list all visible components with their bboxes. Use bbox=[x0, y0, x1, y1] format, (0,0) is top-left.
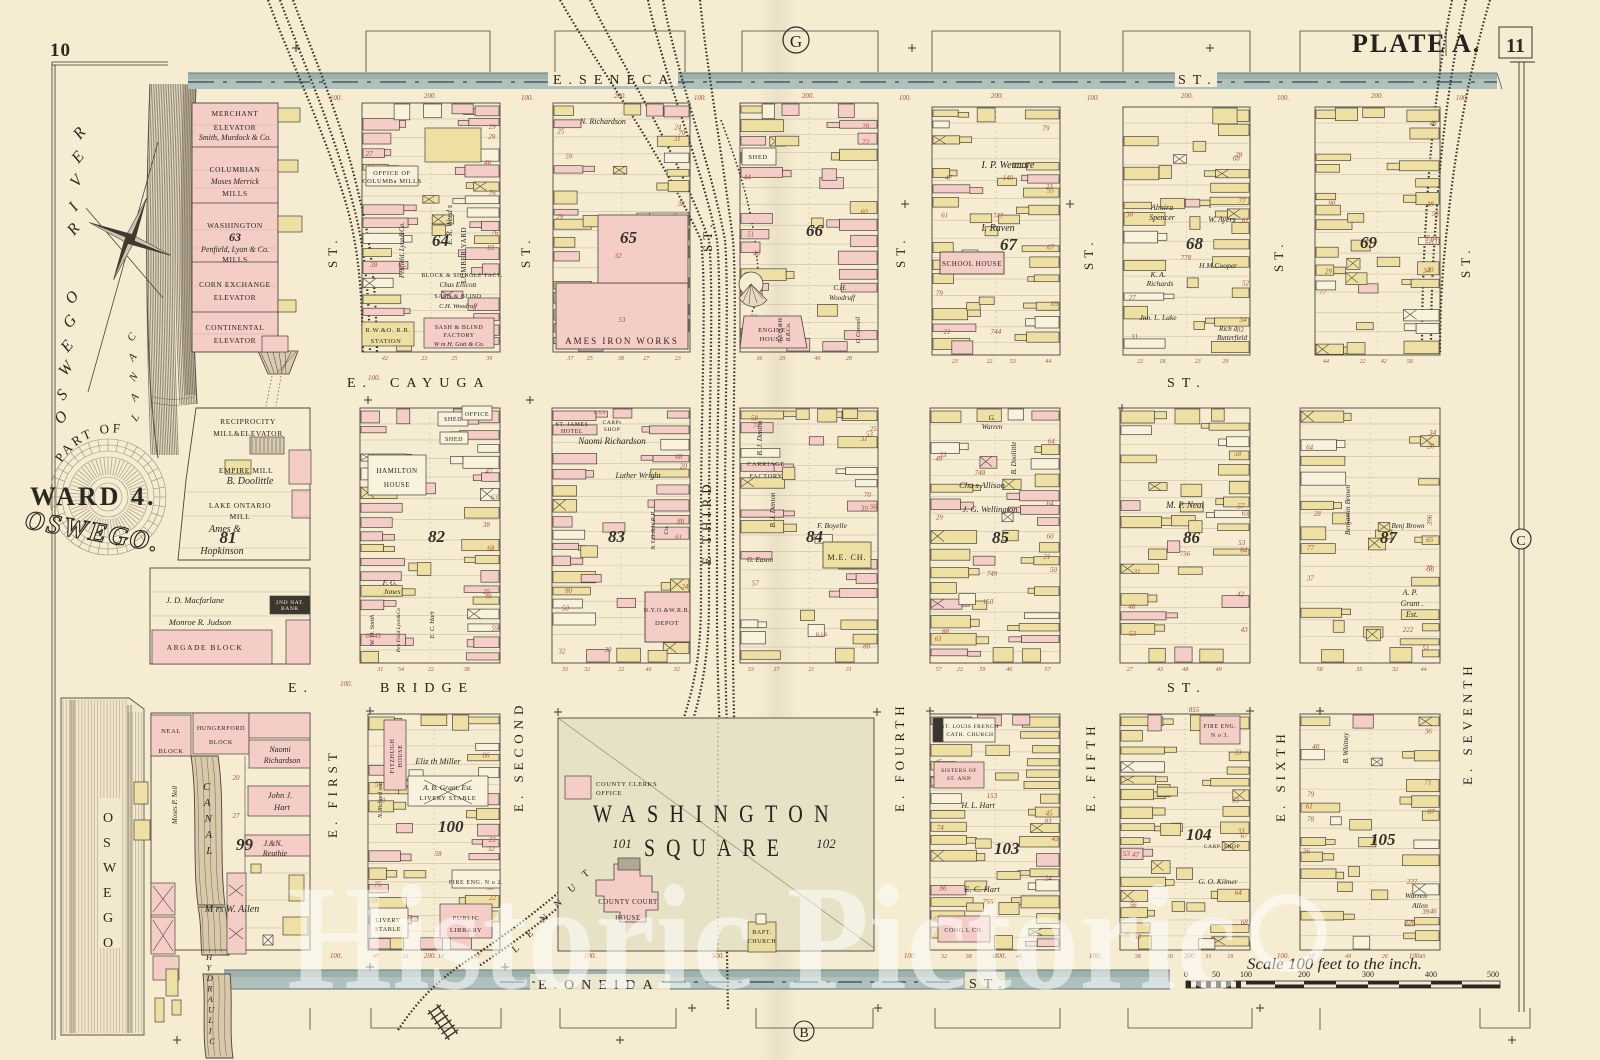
svg-text:28: 28 bbox=[862, 122, 870, 130]
svg-text:ST. JAMES: ST. JAMES bbox=[556, 422, 589, 428]
svg-text:Allen: Allen bbox=[1411, 901, 1428, 910]
svg-text:47: 47 bbox=[945, 174, 953, 182]
svg-text:BLOCK: BLOCK bbox=[158, 748, 183, 755]
svg-text:CONTINENTAL: CONTINENTAL bbox=[206, 323, 265, 332]
svg-text:31: 31 bbox=[1133, 568, 1141, 576]
svg-text:23: 23 bbox=[1195, 359, 1201, 365]
svg-text:W: W bbox=[103, 861, 117, 876]
svg-text:36: 36 bbox=[1424, 728, 1433, 736]
svg-text:N.Y.O.&W.: N.Y.O.&W. bbox=[778, 317, 784, 344]
svg-text:83: 83 bbox=[608, 527, 626, 546]
svg-text:Hopkinson: Hopkinson bbox=[199, 546, 243, 557]
svg-text:50: 50 bbox=[1050, 566, 1058, 574]
svg-text:49: 49 bbox=[1216, 666, 1222, 673]
svg-text:33: 33 bbox=[561, 667, 568, 673]
svg-text:C.H. Woodruff: C.H. Woodruff bbox=[439, 303, 478, 310]
svg-text:Grant .: Grant . bbox=[1400, 599, 1423, 608]
svg-text:E. FIFTH: E. FIFTH bbox=[1083, 721, 1098, 812]
svg-text:ST.: ST. bbox=[1458, 246, 1473, 278]
svg-text:32: 32 bbox=[1391, 667, 1398, 673]
svg-text:22: 22 bbox=[957, 667, 963, 673]
svg-text:50: 50 bbox=[562, 604, 570, 612]
svg-text:86: 86 bbox=[483, 752, 491, 760]
svg-text:46: 46 bbox=[1128, 603, 1136, 611]
svg-text:21: 21 bbox=[808, 667, 814, 673]
svg-text:53: 53 bbox=[866, 431, 874, 439]
svg-text:E: E bbox=[103, 886, 112, 901]
svg-text:74: 74 bbox=[937, 824, 945, 832]
svg-text:24: 24 bbox=[681, 583, 689, 591]
svg-text:23: 23 bbox=[675, 356, 681, 362]
svg-text:N o 3.: N o 3. bbox=[1211, 733, 1229, 739]
svg-text:WASHINGTON: WASHINGTON bbox=[207, 221, 263, 230]
svg-text:20: 20 bbox=[680, 462, 688, 470]
svg-text:Benjamin Brown: Benjamin Brown bbox=[1343, 485, 1352, 536]
svg-text:ST.: ST. bbox=[1081, 238, 1096, 270]
svg-text:64: 64 bbox=[1240, 547, 1248, 555]
svg-text:57: 57 bbox=[1238, 502, 1246, 510]
svg-text:53: 53 bbox=[619, 316, 627, 324]
svg-text:Historic Pictoric: Historic Pictoric bbox=[287, 855, 1237, 1021]
svg-text:29: 29 bbox=[1325, 267, 1333, 275]
svg-text:D: D bbox=[206, 973, 214, 983]
svg-text:71: 71 bbox=[1425, 778, 1432, 786]
svg-text:64: 64 bbox=[1048, 438, 1056, 446]
svg-text:77: 77 bbox=[1319, 289, 1327, 297]
svg-text:38: 38 bbox=[369, 261, 378, 269]
svg-text:31: 31 bbox=[1130, 333, 1138, 341]
svg-text:J.&N.: J.&N. bbox=[263, 839, 282, 848]
svg-text:E. SIXTH: E. SIXTH bbox=[1273, 729, 1288, 822]
svg-text:E.SENECA: E.SENECA bbox=[553, 73, 676, 88]
svg-text:23: 23 bbox=[421, 356, 427, 362]
svg-text:33: 33 bbox=[939, 451, 948, 459]
svg-text:200.: 200. bbox=[1371, 92, 1384, 100]
svg-text:51: 51 bbox=[747, 230, 754, 238]
svg-text:Jno. L. Lake: Jno. L. Lake bbox=[1139, 313, 1177, 322]
svg-text:Penfield, Lyon&Co.: Penfield, Lyon&Co. bbox=[398, 222, 406, 279]
svg-text:61: 61 bbox=[1242, 216, 1249, 224]
svg-text:29: 29 bbox=[489, 123, 497, 131]
svg-text:83: 83 bbox=[487, 244, 495, 252]
svg-text:A. P.: A. P. bbox=[1402, 588, 1418, 597]
svg-text:87: 87 bbox=[1428, 808, 1436, 816]
svg-text:Eliz th Miller: Eliz th Miller bbox=[414, 756, 461, 766]
svg-text:200: 200 bbox=[1298, 970, 1310, 979]
svg-text:100.: 100. bbox=[330, 94, 343, 102]
svg-text:MILL&ELEVATOR: MILL&ELEVATOR bbox=[213, 429, 283, 438]
svg-text:Benj Brown: Benj Brown bbox=[1392, 522, 1425, 530]
svg-text:G. Eason: G. Eason bbox=[747, 556, 774, 564]
svg-text:Jones: Jones bbox=[383, 587, 400, 596]
svg-text:56: 56 bbox=[870, 503, 878, 511]
svg-text:E THIRD: E THIRD bbox=[699, 479, 714, 565]
svg-text:John J.: John J. bbox=[268, 790, 293, 800]
svg-text:I. Raven: I. Raven bbox=[980, 223, 1014, 234]
svg-text:STATION: STATION bbox=[371, 338, 402, 345]
svg-text:80: 80 bbox=[677, 517, 685, 525]
svg-text:HOUSE: HOUSE bbox=[384, 481, 410, 489]
svg-text:S: S bbox=[103, 836, 111, 851]
svg-text:Richardson: Richardson bbox=[263, 756, 301, 765]
svg-text:HOTEL: HOTEL bbox=[561, 429, 583, 435]
svg-text:SHED: SHED bbox=[748, 154, 767, 161]
svg-text:101: 101 bbox=[612, 836, 632, 851]
svg-text:Warren: Warren bbox=[1405, 891, 1427, 900]
svg-text:Spencer: Spencer bbox=[1149, 213, 1176, 222]
svg-text:BANK: BANK bbox=[281, 606, 299, 612]
svg-text:OFFICE: OFFICE bbox=[465, 412, 489, 418]
svg-text:N.Y.O.&W.R.R.: N.Y.O.&W.R.R. bbox=[650, 510, 657, 551]
svg-text:21: 21 bbox=[1044, 553, 1051, 561]
svg-text:90: 90 bbox=[1328, 200, 1336, 208]
svg-text:200.: 200. bbox=[424, 92, 437, 100]
svg-text:77: 77 bbox=[1307, 544, 1315, 552]
svg-text:WARD 4.: WARD 4. bbox=[30, 482, 156, 511]
svg-text:27: 27 bbox=[1127, 667, 1134, 673]
svg-text:BLOCK: BLOCK bbox=[209, 739, 233, 746]
svg-text:69: 69 bbox=[1051, 300, 1059, 308]
svg-text:56: 56 bbox=[1432, 210, 1440, 218]
svg-text:42: 42 bbox=[1381, 358, 1387, 365]
svg-text:L: L bbox=[207, 1015, 213, 1025]
svg-text:28: 28 bbox=[1314, 510, 1322, 518]
svg-text:E. R. Weed s: E. R. Weed s bbox=[445, 205, 454, 246]
svg-text:58: 58 bbox=[1317, 667, 1323, 673]
svg-text:G: G bbox=[103, 911, 113, 926]
svg-text:64: 64 bbox=[1306, 443, 1314, 451]
svg-text:K. A.: K. A. bbox=[1149, 270, 1165, 279]
svg-text:34: 34 bbox=[1239, 316, 1248, 324]
svg-text:778: 778 bbox=[1181, 254, 1192, 262]
svg-text:WASHINGTON: WASHINGTON bbox=[593, 801, 840, 828]
svg-text:31: 31 bbox=[376, 667, 383, 673]
svg-text:OFFICE: OFFICE bbox=[596, 790, 622, 797]
svg-text:22: 22 bbox=[428, 667, 434, 673]
svg-text:59: 59 bbox=[979, 667, 985, 673]
svg-text:43: 43 bbox=[1241, 626, 1249, 634]
svg-text:B.S.S.: B.S.S. bbox=[594, 410, 607, 416]
svg-text:30: 30 bbox=[604, 646, 613, 654]
svg-text:61: 61 bbox=[1306, 802, 1313, 810]
svg-text:CARPt: CARPt bbox=[603, 420, 622, 426]
svg-text:B: B bbox=[799, 1026, 808, 1041]
svg-text:749: 749 bbox=[987, 570, 998, 578]
svg-text:U: U bbox=[208, 1005, 215, 1015]
svg-text:82: 82 bbox=[428, 527, 446, 546]
svg-text:E. SECOND: E. SECOND bbox=[511, 701, 526, 812]
svg-text:29: 29 bbox=[488, 133, 496, 141]
svg-text:RECIPROCITY: RECIPROCITY bbox=[220, 417, 276, 426]
svg-text:59: 59 bbox=[565, 153, 573, 161]
svg-text:ST.: ST. bbox=[518, 236, 533, 268]
svg-text:500: 500 bbox=[1487, 970, 1499, 979]
svg-text:HOUSE: HOUSE bbox=[398, 744, 404, 767]
svg-text:25: 25 bbox=[483, 588, 491, 596]
svg-text:37: 37 bbox=[1306, 574, 1315, 582]
svg-text:88: 88 bbox=[863, 643, 871, 651]
svg-text:140: 140 bbox=[1003, 174, 1014, 182]
svg-text:200.: 200. bbox=[1181, 92, 1194, 100]
svg-text:744: 744 bbox=[991, 328, 1002, 336]
svg-text:58: 58 bbox=[1407, 359, 1413, 365]
svg-text:Naomi: Naomi bbox=[268, 745, 290, 754]
svg-text:39: 39 bbox=[860, 505, 869, 513]
svg-text:85: 85 bbox=[992, 528, 1010, 547]
svg-text:68: 68 bbox=[675, 453, 683, 461]
svg-text:23: 23 bbox=[489, 836, 497, 844]
svg-text:53: 53 bbox=[1232, 796, 1240, 804]
svg-text:78: 78 bbox=[1307, 816, 1315, 824]
svg-text:20: 20 bbox=[1427, 266, 1435, 274]
svg-text:153: 153 bbox=[987, 792, 998, 800]
svg-text:C: C bbox=[203, 781, 211, 793]
svg-text:24: 24 bbox=[674, 123, 682, 131]
svg-text:ARGADE BLOCK: ARGADE BLOCK bbox=[167, 643, 244, 652]
svg-text:88: 88 bbox=[942, 628, 950, 636]
svg-text:SHOP: SHOP bbox=[604, 427, 620, 433]
svg-text:228: 228 bbox=[1405, 919, 1416, 927]
svg-text:400: 400 bbox=[1425, 970, 1437, 979]
svg-text:38: 38 bbox=[463, 667, 470, 673]
svg-text:Luther Wright: Luther Wright bbox=[614, 471, 661, 480]
svg-text:46: 46 bbox=[753, 250, 761, 258]
svg-text:C: C bbox=[209, 1036, 215, 1046]
svg-text:E. FIRST: E. FIRST bbox=[325, 748, 340, 838]
svg-text:BRIDGE: BRIDGE bbox=[380, 681, 474, 696]
svg-text:EMPIRE MILL: EMPIRE MILL bbox=[219, 466, 273, 475]
svg-text:E. FOURTH: E. FOURTH bbox=[892, 701, 907, 812]
svg-text:Est.: Est. bbox=[1405, 610, 1418, 619]
svg-text:44: 44 bbox=[1421, 666, 1427, 673]
svg-text:22: 22 bbox=[1137, 359, 1143, 365]
svg-text:76: 76 bbox=[489, 189, 497, 197]
svg-text:20: 20 bbox=[1425, 564, 1433, 572]
svg-text:G.: G. bbox=[989, 414, 996, 422]
svg-text:SHED: SHED bbox=[444, 417, 462, 423]
svg-text:E. SEVENTH: E. SEVENTH bbox=[1460, 661, 1475, 785]
svg-text:60: 60 bbox=[861, 208, 869, 216]
svg-text:Reuthie: Reuthie bbox=[262, 849, 288, 858]
svg-text:J. D. Macfarlane: J. D. Macfarlane bbox=[166, 595, 224, 605]
svg-text:SHED: SHED bbox=[445, 437, 463, 443]
svg-text:69: 69 bbox=[1360, 233, 1378, 252]
svg-text:59: 59 bbox=[491, 625, 499, 633]
svg-text:100.: 100. bbox=[1456, 94, 1469, 102]
svg-text:32: 32 bbox=[614, 252, 623, 260]
svg-text:M. P. Neal: M. P. Neal bbox=[1165, 500, 1204, 510]
svg-text:99: 99 bbox=[236, 835, 254, 854]
svg-text:28: 28 bbox=[846, 356, 852, 362]
svg-text:65: 65 bbox=[620, 228, 638, 247]
svg-text:O: O bbox=[103, 811, 113, 826]
svg-text:300: 300 bbox=[1362, 970, 1374, 979]
svg-text:A: A bbox=[204, 829, 212, 841]
svg-text:79: 79 bbox=[936, 290, 944, 298]
svg-text:B. Doolittle: B. Doolittle bbox=[227, 476, 274, 487]
svg-text:855: 855 bbox=[1189, 706, 1200, 714]
svg-text:200.: 200. bbox=[991, 92, 1004, 100]
svg-text:72: 72 bbox=[862, 138, 870, 146]
svg-text:200.: 200. bbox=[802, 92, 815, 100]
svg-text:32: 32 bbox=[487, 845, 496, 853]
svg-text:MILLS: MILLS bbox=[222, 255, 248, 264]
svg-text:38: 38 bbox=[482, 521, 491, 529]
svg-text:37: 37 bbox=[566, 356, 574, 362]
svg-text:ST.: ST. bbox=[1271, 240, 1286, 272]
svg-text:Chas Ellicott: Chas Ellicott bbox=[440, 281, 478, 289]
svg-text:MERCHANT: MERCHANT bbox=[212, 109, 259, 118]
svg-text:SASH & BLIND: SASH & BLIND bbox=[434, 294, 481, 300]
svg-text:38: 38 bbox=[617, 356, 624, 362]
svg-text:748: 748 bbox=[975, 469, 986, 477]
svg-text:47: 47 bbox=[485, 468, 493, 476]
svg-text:23: 23 bbox=[1046, 183, 1054, 191]
svg-text:I. P. Wetmore: I. P. Wetmore bbox=[981, 160, 1036, 171]
svg-text:C: C bbox=[1516, 534, 1525, 549]
svg-text:SCHOOL HOUSE: SCHOOL HOUSE bbox=[942, 260, 1002, 268]
svg-text:ST. ANN: ST. ANN bbox=[947, 776, 972, 782]
svg-text:60: 60 bbox=[1047, 533, 1055, 541]
svg-text:N: N bbox=[204, 813, 213, 825]
svg-text:LAKE ONTARIO: LAKE ONTARIO bbox=[209, 501, 271, 510]
svg-text:ST.: ST. bbox=[1178, 73, 1218, 88]
svg-text:CATH. CHURCH: CATH. CHURCH bbox=[946, 732, 993, 738]
svg-text:W m H. Gott & Co.: W m H. Gott & Co. bbox=[434, 341, 485, 348]
svg-text:53: 53 bbox=[1010, 359, 1016, 365]
svg-text:756: 756 bbox=[1180, 550, 1191, 558]
svg-text:54: 54 bbox=[398, 666, 404, 673]
svg-text:E.: E. bbox=[288, 681, 314, 696]
svg-text:22: 22 bbox=[987, 359, 993, 365]
svg-text:105: 105 bbox=[1370, 830, 1396, 849]
svg-text:33: 33 bbox=[747, 667, 754, 673]
svg-text:Rich d: Rich d bbox=[1218, 325, 1238, 333]
svg-text:R: R bbox=[206, 984, 213, 994]
svg-text:B. Whitney: B. Whitney bbox=[1342, 732, 1350, 764]
svg-text:ST.: ST. bbox=[1167, 376, 1207, 391]
svg-text:42: 42 bbox=[382, 355, 388, 362]
svg-text:H.M.Cooper: H.M.Cooper bbox=[1198, 261, 1237, 270]
svg-text:Co.: Co. bbox=[663, 525, 670, 535]
svg-text:44: 44 bbox=[1045, 358, 1051, 365]
svg-text:48: 48 bbox=[1182, 666, 1188, 673]
svg-text:102: 102 bbox=[816, 836, 836, 851]
svg-text:25: 25 bbox=[557, 128, 565, 136]
svg-text:100.: 100. bbox=[340, 680, 353, 688]
svg-text:52: 52 bbox=[1242, 279, 1250, 287]
svg-text:45: 45 bbox=[1046, 809, 1054, 817]
svg-text:100.: 100. bbox=[694, 94, 707, 102]
svg-text:100: 100 bbox=[438, 817, 464, 836]
svg-text:68: 68 bbox=[487, 545, 495, 553]
svg-text:65: 65 bbox=[1242, 510, 1250, 518]
svg-text:42: 42 bbox=[1237, 591, 1245, 599]
svg-text:F. G.: F. G. bbox=[382, 578, 398, 587]
svg-text:38: 38 bbox=[677, 200, 686, 208]
svg-text:61: 61 bbox=[675, 533, 682, 541]
svg-text:Moses Merrick: Moses Merrick bbox=[210, 177, 260, 186]
svg-text:Cha s Allison: Cha s Allison bbox=[959, 480, 1005, 490]
svg-text:44: 44 bbox=[1323, 358, 1329, 365]
svg-text:F. Boyelle: F. Boyelle bbox=[816, 521, 848, 530]
svg-text:ST.: ST. bbox=[1167, 681, 1207, 696]
svg-text:R.W.&O. R.R.: R.W.&O. R.R. bbox=[365, 327, 410, 334]
svg-text:23: 23 bbox=[952, 359, 958, 365]
svg-text:Warren: Warren bbox=[982, 423, 1003, 431]
svg-text:B. Doolittle: B. Doolittle bbox=[1010, 442, 1018, 475]
svg-text:O: O bbox=[103, 936, 113, 951]
svg-text:LIVERY STABLE: LIVERY STABLE bbox=[420, 795, 477, 802]
svg-text:227: 227 bbox=[1407, 878, 1418, 886]
svg-text:34: 34 bbox=[1428, 429, 1437, 437]
svg-text:46: 46 bbox=[1430, 908, 1438, 916]
svg-text:58: 58 bbox=[1234, 450, 1242, 458]
svg-text:M rs W. Allen: M rs W. Allen bbox=[204, 904, 259, 915]
svg-text:MILLS: MILLS bbox=[222, 189, 248, 198]
svg-text:SISTERS OF: SISTERS OF bbox=[941, 768, 977, 774]
svg-text:57: 57 bbox=[936, 667, 943, 673]
svg-text:31: 31 bbox=[673, 135, 681, 143]
svg-text:32: 32 bbox=[557, 648, 566, 656]
svg-text:A. B. Grant. Est.: A. B. Grant. Est. bbox=[422, 783, 473, 792]
svg-text:ST.: ST. bbox=[893, 236, 908, 268]
svg-text:Pen Field Lyon&Co: Pen Field Lyon&Co bbox=[396, 608, 402, 654]
svg-text:100.: 100. bbox=[1087, 94, 1100, 102]
svg-text:21: 21 bbox=[944, 328, 951, 336]
svg-text:36: 36 bbox=[1302, 847, 1311, 855]
svg-text:68: 68 bbox=[1233, 155, 1241, 163]
svg-text:Almira: Almira bbox=[1150, 203, 1173, 212]
svg-text:100.: 100. bbox=[521, 94, 534, 102]
svg-text:22: 22 bbox=[1360, 359, 1366, 365]
svg-text:35: 35 bbox=[1355, 667, 1362, 673]
svg-text:39: 39 bbox=[485, 356, 492, 362]
svg-text:70: 70 bbox=[864, 491, 872, 499]
svg-text:46: 46 bbox=[814, 355, 820, 362]
svg-text:747: 747 bbox=[993, 212, 1004, 220]
svg-text:18: 18 bbox=[1159, 359, 1165, 365]
svg-text:46: 46 bbox=[646, 666, 652, 673]
svg-text:29: 29 bbox=[556, 213, 564, 221]
svg-text:11: 11 bbox=[1506, 35, 1525, 57]
svg-text:150: 150 bbox=[983, 598, 994, 606]
svg-text:AMES IRON WORKS: AMES IRON WORKS bbox=[565, 336, 679, 346]
svg-text:76: 76 bbox=[491, 229, 499, 237]
svg-text:44: 44 bbox=[744, 173, 752, 181]
svg-text:A: A bbox=[203, 797, 211, 809]
svg-text:W. D. Smith: W. D. Smith bbox=[369, 615, 376, 646]
svg-text:83: 83 bbox=[1045, 817, 1053, 825]
svg-text:77: 77 bbox=[1239, 197, 1247, 205]
svg-text:65: 65 bbox=[1426, 536, 1434, 544]
svg-text:ST.: ST. bbox=[325, 236, 340, 268]
svg-text:57: 57 bbox=[1045, 667, 1052, 673]
svg-text:43: 43 bbox=[1157, 666, 1163, 673]
svg-text:Naomi Richardson: Naomi Richardson bbox=[577, 436, 646, 446]
svg-text:27: 27 bbox=[366, 150, 374, 158]
svg-text:HAMILTON: HAMILTON bbox=[376, 467, 417, 475]
svg-text:100: 100 bbox=[1240, 970, 1252, 979]
svg-text:68: 68 bbox=[1241, 919, 1249, 927]
svg-text:Moses P. Neil: Moses P. Neil bbox=[171, 786, 179, 825]
svg-text:Hart: Hart bbox=[273, 802, 291, 812]
svg-text:DEPOT: DEPOT bbox=[655, 620, 679, 627]
svg-text:ELEVATOR: ELEVATOR bbox=[214, 336, 256, 345]
svg-text:B. J. Denton: B. J. Denton bbox=[769, 492, 777, 527]
svg-text:45: 45 bbox=[1052, 835, 1060, 843]
svg-text:48: 48 bbox=[1427, 200, 1435, 208]
